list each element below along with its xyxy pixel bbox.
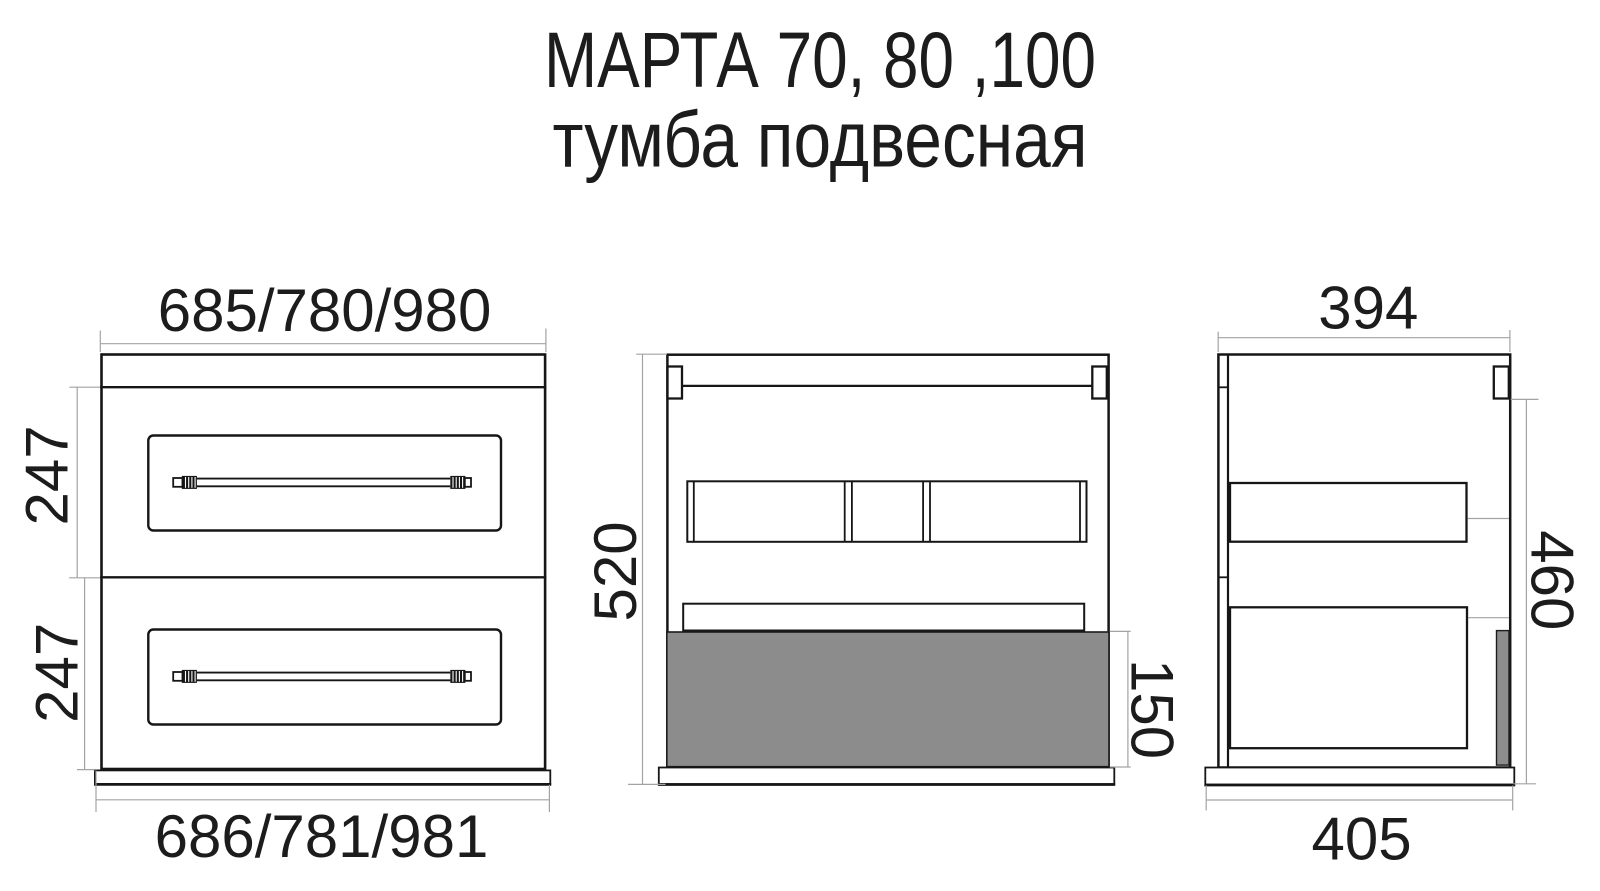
svg-text:тумба подвесная: тумба подвесная [553, 95, 1088, 184]
svg-text:685/780/980: 685/780/980 [158, 277, 492, 344]
svg-text:394: 394 [1318, 275, 1418, 342]
svg-text:150: 150 [1118, 659, 1185, 759]
svg-text:247: 247 [24, 623, 91, 723]
svg-text:405: 405 [1312, 806, 1412, 873]
svg-text:247: 247 [14, 425, 81, 525]
svg-text:460: 460 [1519, 530, 1586, 630]
svg-text:МАРТА 70, 80 ,100: МАРТА 70, 80 ,100 [544, 15, 1096, 104]
svg-text:686/781/981: 686/781/981 [155, 803, 489, 870]
svg-text:520: 520 [582, 521, 649, 621]
